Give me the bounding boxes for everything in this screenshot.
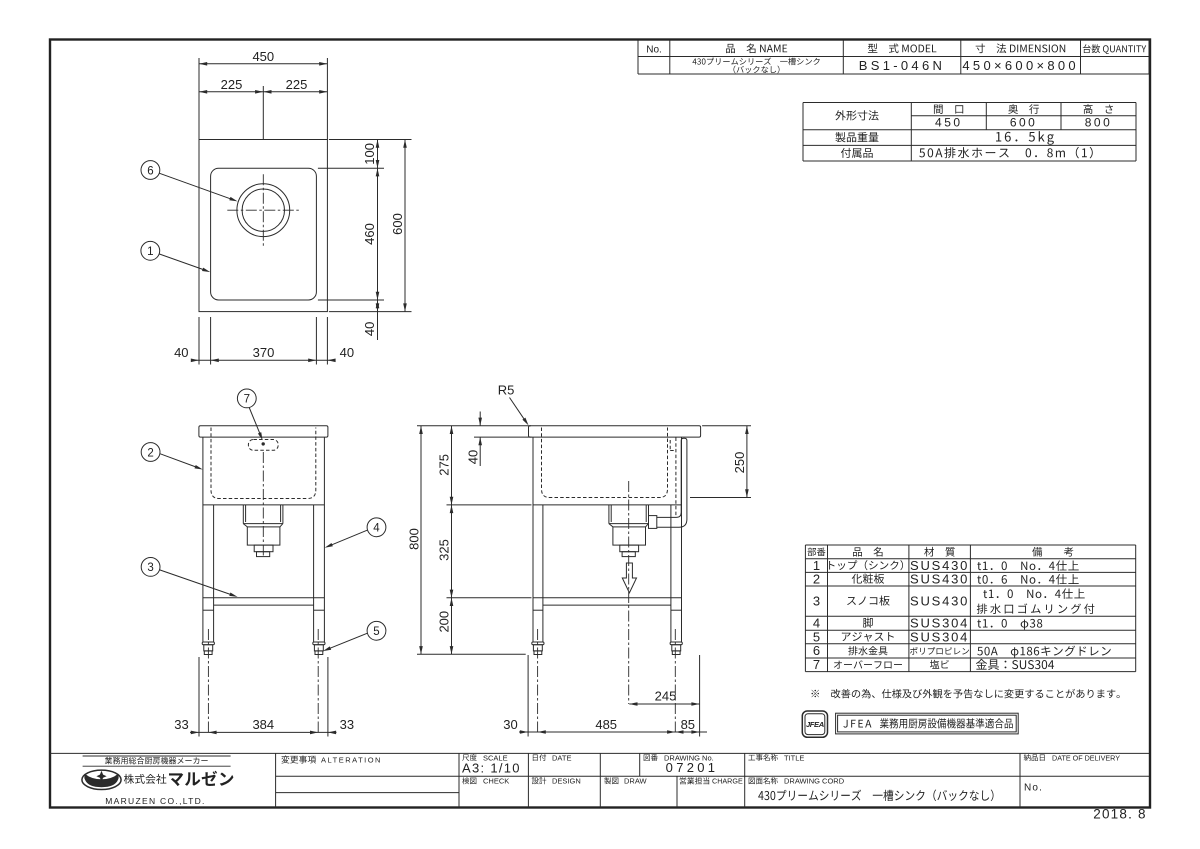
svg-text:SUS304: SUS304: [910, 616, 969, 631]
svg-text:485: 485: [595, 717, 617, 732]
svg-text:JFEA: JFEA: [806, 720, 824, 729]
svg-text:DRAW: DRAW: [624, 777, 648, 786]
svg-text:2: 2: [813, 572, 820, 587]
svg-text:450: 450: [935, 116, 963, 130]
svg-text:4: 4: [813, 616, 820, 631]
svg-text:7: 7: [244, 394, 250, 406]
svg-text:No.: No.: [1024, 783, 1043, 794]
svg-text:200: 200: [437, 611, 452, 633]
svg-text:40: 40: [362, 322, 377, 336]
svg-text:DESIGN: DESIGN: [552, 777, 581, 786]
svg-text:5: 5: [373, 626, 379, 638]
svg-text:A3: 1/10: A3: 1/10: [462, 761, 521, 776]
svg-text:R5: R5: [498, 383, 515, 398]
svg-text:450: 450: [252, 49, 274, 64]
svg-text:460: 460: [362, 223, 377, 245]
svg-text:85: 85: [681, 717, 695, 732]
svg-text:225: 225: [286, 77, 308, 92]
svg-text:450×600×800: 450×600×800: [962, 58, 1079, 73]
svg-text:384: 384: [252, 717, 274, 732]
svg-text:1: 1: [147, 246, 153, 258]
svg-text:6: 6: [147, 165, 153, 177]
svg-text:CHECK: CHECK: [483, 777, 509, 786]
svg-text:07201: 07201: [666, 760, 719, 775]
svg-text:4: 4: [373, 523, 380, 535]
svg-text:SUS430: SUS430: [910, 572, 969, 587]
svg-text:5: 5: [813, 629, 820, 644]
svg-text:600: 600: [390, 213, 405, 235]
svg-text:40: 40: [340, 345, 354, 360]
svg-text:SUS304: SUS304: [910, 630, 969, 645]
svg-text:6: 6: [813, 643, 820, 658]
svg-text:245: 245: [655, 689, 677, 704]
svg-text:33: 33: [340, 717, 354, 732]
svg-text:325: 325: [437, 539, 452, 561]
svg-text:BS1-046N: BS1-046N: [859, 58, 945, 73]
svg-text:3: 3: [813, 593, 820, 608]
svg-text:2018. 8: 2018. 8: [1093, 807, 1146, 822]
svg-text:DRAWING CORD: DRAWING CORD: [784, 777, 845, 786]
svg-text:TITLE: TITLE: [784, 753, 804, 762]
svg-text:DATE: DATE: [552, 753, 571, 762]
svg-text:33: 33: [174, 717, 188, 732]
svg-text:30: 30: [503, 717, 517, 732]
svg-text:250: 250: [732, 452, 747, 474]
svg-text:DATE OF DELIVERY: DATE OF DELIVERY: [1052, 753, 1120, 762]
svg-text:CHARGE: CHARGE: [712, 777, 743, 786]
svg-text:100: 100: [362, 143, 377, 165]
svg-text:7: 7: [813, 657, 820, 672]
svg-text:40: 40: [465, 450, 480, 464]
svg-text:225: 225: [221, 77, 243, 92]
svg-text:600: 600: [1010, 116, 1038, 130]
svg-text:No.: No.: [646, 44, 662, 55]
svg-text:275: 275: [437, 454, 452, 476]
svg-text:370: 370: [253, 345, 275, 360]
svg-text:800: 800: [1085, 116, 1113, 130]
svg-text:2: 2: [147, 447, 153, 459]
svg-text:3: 3: [147, 562, 153, 574]
svg-text:SUS430: SUS430: [910, 594, 969, 609]
svg-text:MARUZEN CO.,LTD.: MARUZEN CO.,LTD.: [105, 796, 205, 806]
svg-text:ALTERATION: ALTERATION: [321, 756, 382, 765]
svg-text:800: 800: [406, 528, 421, 550]
svg-text:40: 40: [174, 345, 188, 360]
